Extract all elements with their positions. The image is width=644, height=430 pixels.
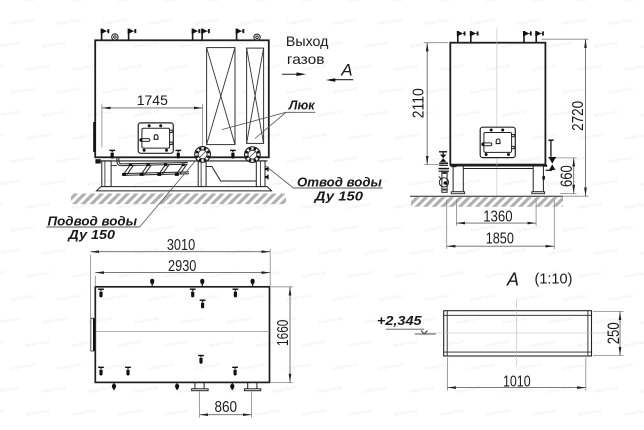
svg-text:2110: 2110	[411, 88, 428, 118]
svg-text:2720: 2720	[570, 101, 587, 131]
svg-text:1360: 1360	[483, 209, 513, 226]
svg-text:+2,345: +2,345	[377, 313, 422, 328]
svg-text:Люк: Люк	[288, 97, 316, 112]
svg-text:3010: 3010	[167, 237, 196, 254]
svg-text:660: 660	[558, 165, 576, 187]
svg-text:A: A	[506, 269, 519, 289]
svg-text:860: 860	[215, 399, 238, 416]
svg-text:Ду 150: Ду 150	[67, 227, 115, 242]
svg-text:Отвод воды: Отвод воды	[297, 175, 383, 190]
svg-text:1010: 1010	[503, 373, 531, 390]
svg-text:250: 250	[605, 322, 623, 344]
svg-text:Ду 150: Ду 150	[314, 189, 364, 204]
svg-text:1850: 1850	[486, 231, 515, 248]
svg-text:1745: 1745	[137, 92, 168, 108]
svg-text:(1:10): (1:10)	[535, 271, 573, 288]
svg-text:1660: 1660	[275, 320, 292, 346]
svg-text:A: A	[340, 60, 352, 79]
svg-text:2930: 2930	[168, 258, 197, 275]
svg-text:Выход: Выход	[286, 33, 329, 49]
svg-text:газов: газов	[287, 51, 325, 67]
